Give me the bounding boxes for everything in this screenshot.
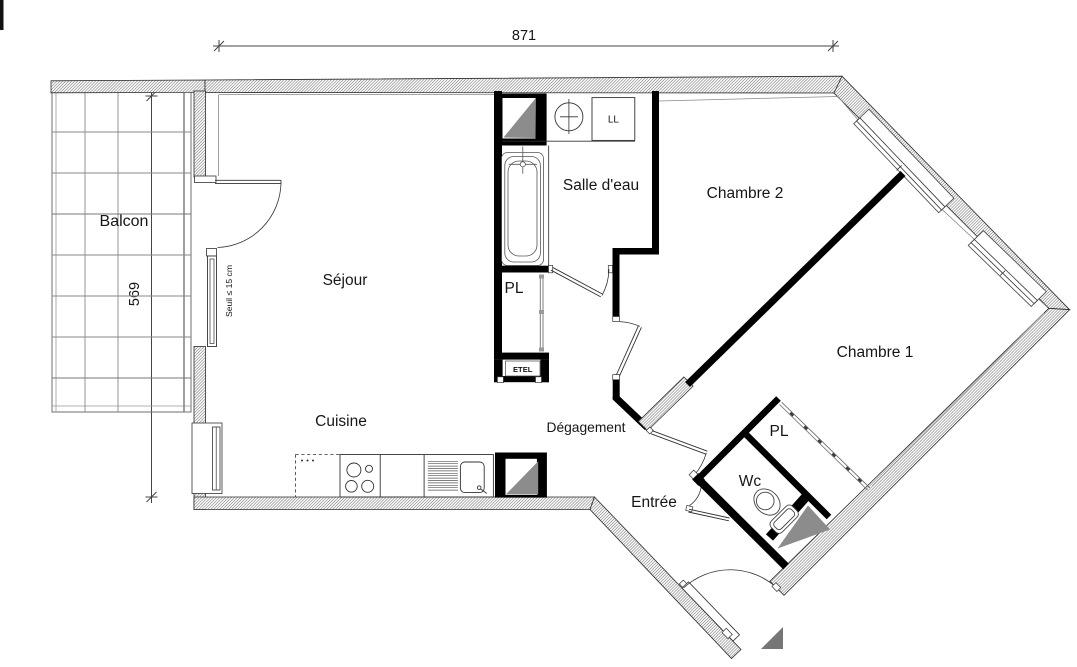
svg-text:PL: PL <box>505 280 524 297</box>
svg-text:PL: PL <box>770 423 789 440</box>
svg-text:Entrée: Entrée <box>631 494 677 511</box>
svg-text:Séjour: Séjour <box>323 272 368 289</box>
svg-text:569: 569 <box>127 282 143 306</box>
svg-text:Salle d'eau: Salle d'eau <box>563 177 639 194</box>
svg-text:Wc: Wc <box>739 473 762 490</box>
svg-text:Seuil ≤ 15 cm: Seuil ≤ 15 cm <box>224 265 234 317</box>
svg-text:Dégagement: Dégagement <box>546 420 625 435</box>
svg-text:Cuisine: Cuisine <box>315 413 367 430</box>
svg-text:Chambre 2: Chambre 2 <box>707 185 784 202</box>
svg-text:Chambre 1: Chambre 1 <box>837 344 914 361</box>
svg-text:871: 871 <box>512 28 536 44</box>
svg-text:Balcon: Balcon <box>100 213 149 230</box>
svg-text:ETEL: ETEL <box>513 365 533 374</box>
svg-text:LL: LL <box>608 115 620 126</box>
